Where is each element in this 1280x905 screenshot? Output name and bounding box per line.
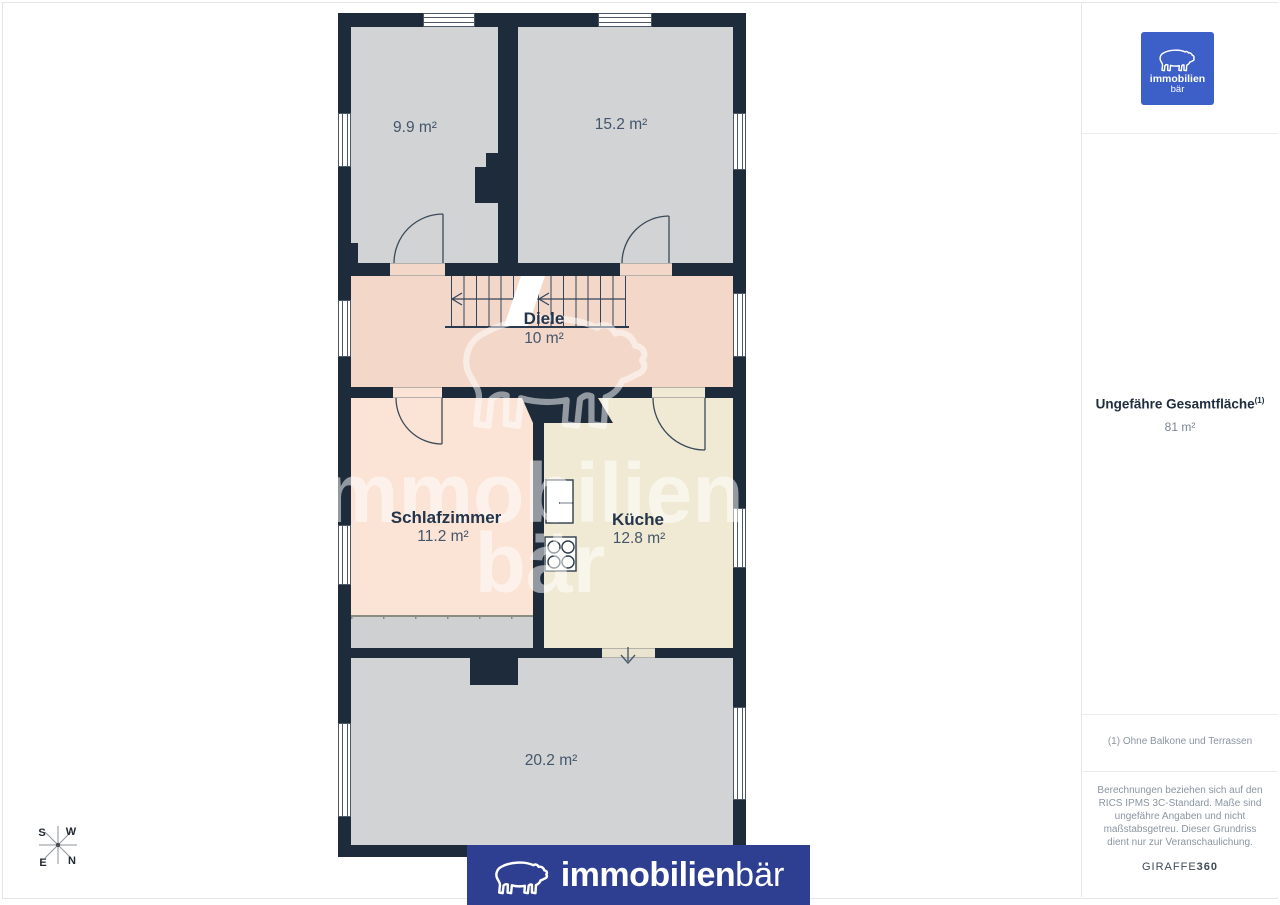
wall-left-stub [351, 243, 358, 263]
wall-hall-south [351, 387, 393, 398]
floorplan-drawing: immobilien bär 9.9 m² 15.2 m² Diele 10 m… [338, 13, 746, 857]
total-area-label: Ungefähre Gesamtfläche(1) [1082, 396, 1278, 412]
wall-hall-north [672, 263, 734, 276]
wall-hall-south [705, 387, 734, 398]
kitchen-sink [546, 480, 573, 523]
room-area-label: 15.2 m² [595, 116, 648, 134]
footnote-marker: (1) [1255, 396, 1265, 405]
compass-label: S [38, 827, 45, 839]
provider-logo: GIRAFFE360 [1082, 861, 1278, 873]
window [423, 13, 475, 27]
kitchen-stove [545, 537, 576, 571]
room-area-label: 12.8 m² [613, 530, 666, 548]
window [733, 293, 746, 357]
total-area-block: Ungefähre Gesamtfläche(1) 81 m² [1082, 396, 1278, 434]
brand-name: immobilien [1150, 74, 1205, 85]
exit-arrow [621, 647, 635, 663]
wall-chimney-step [486, 153, 498, 167]
wall-bottom-room-north [351, 648, 602, 658]
banner-brand-text: immobilienbär [561, 858, 785, 892]
compass-label: W [66, 826, 77, 838]
wall-hall-south [442, 387, 652, 398]
footnote-text: (1) Ohne Balkone und Terrassen [1082, 736, 1278, 747]
room-area-label: 20.2 m² [525, 752, 578, 770]
window [733, 707, 746, 800]
wall-top-rooms-divider [498, 27, 518, 263]
wall-bedroom-kitchen [533, 398, 544, 658]
brand-logo: immobilien bär [1141, 32, 1214, 105]
compass-rose-icon: S W E N [20, 808, 98, 886]
compass-label: E [39, 857, 46, 869]
compass-label: N [68, 855, 76, 867]
wall-hall-north [351, 263, 390, 276]
sidebar-divider [1082, 714, 1278, 715]
sidebar: immobilien bär Ungefähre Gesamtfläche(1)… [1081, 3, 1278, 897]
wall-top [338, 13, 746, 27]
window [338, 300, 351, 357]
bear-icon [1158, 43, 1198, 74]
brand-banner: immobilienbär [467, 845, 810, 905]
window [598, 13, 652, 27]
bear-icon [493, 852, 553, 898]
room-name-label: Diele [524, 309, 565, 329]
wall-chimney-block [475, 167, 518, 203]
wall-bottom-room-north [655, 648, 734, 658]
room-area-label: 10 m² [524, 330, 564, 348]
disclaimer-text: Berechnungen beziehen sich auf den RICS … [1093, 784, 1268, 849]
window [733, 113, 746, 170]
wall-hall-north [445, 263, 620, 276]
window [338, 113, 351, 167]
sidebar-divider [1082, 133, 1278, 134]
room-name-label: Küche [612, 510, 664, 530]
brand-name-2: bär [1171, 85, 1185, 95]
wall-bottom-room-notch [470, 658, 518, 685]
room-area-label: 11.2 m² [417, 528, 468, 546]
window [733, 508, 746, 568]
room-name-label: Schlafzimmer [391, 508, 502, 528]
window [338, 525, 351, 585]
total-area-value: 81 m² [1082, 420, 1278, 434]
window [338, 723, 351, 817]
room-area-label: 9.9 m² [393, 119, 437, 137]
sidebar-divider [1082, 771, 1278, 772]
floorplan-page: immobilien bär 9.9 m² 15.2 m² Diele 10 m… [0, 0, 1280, 905]
